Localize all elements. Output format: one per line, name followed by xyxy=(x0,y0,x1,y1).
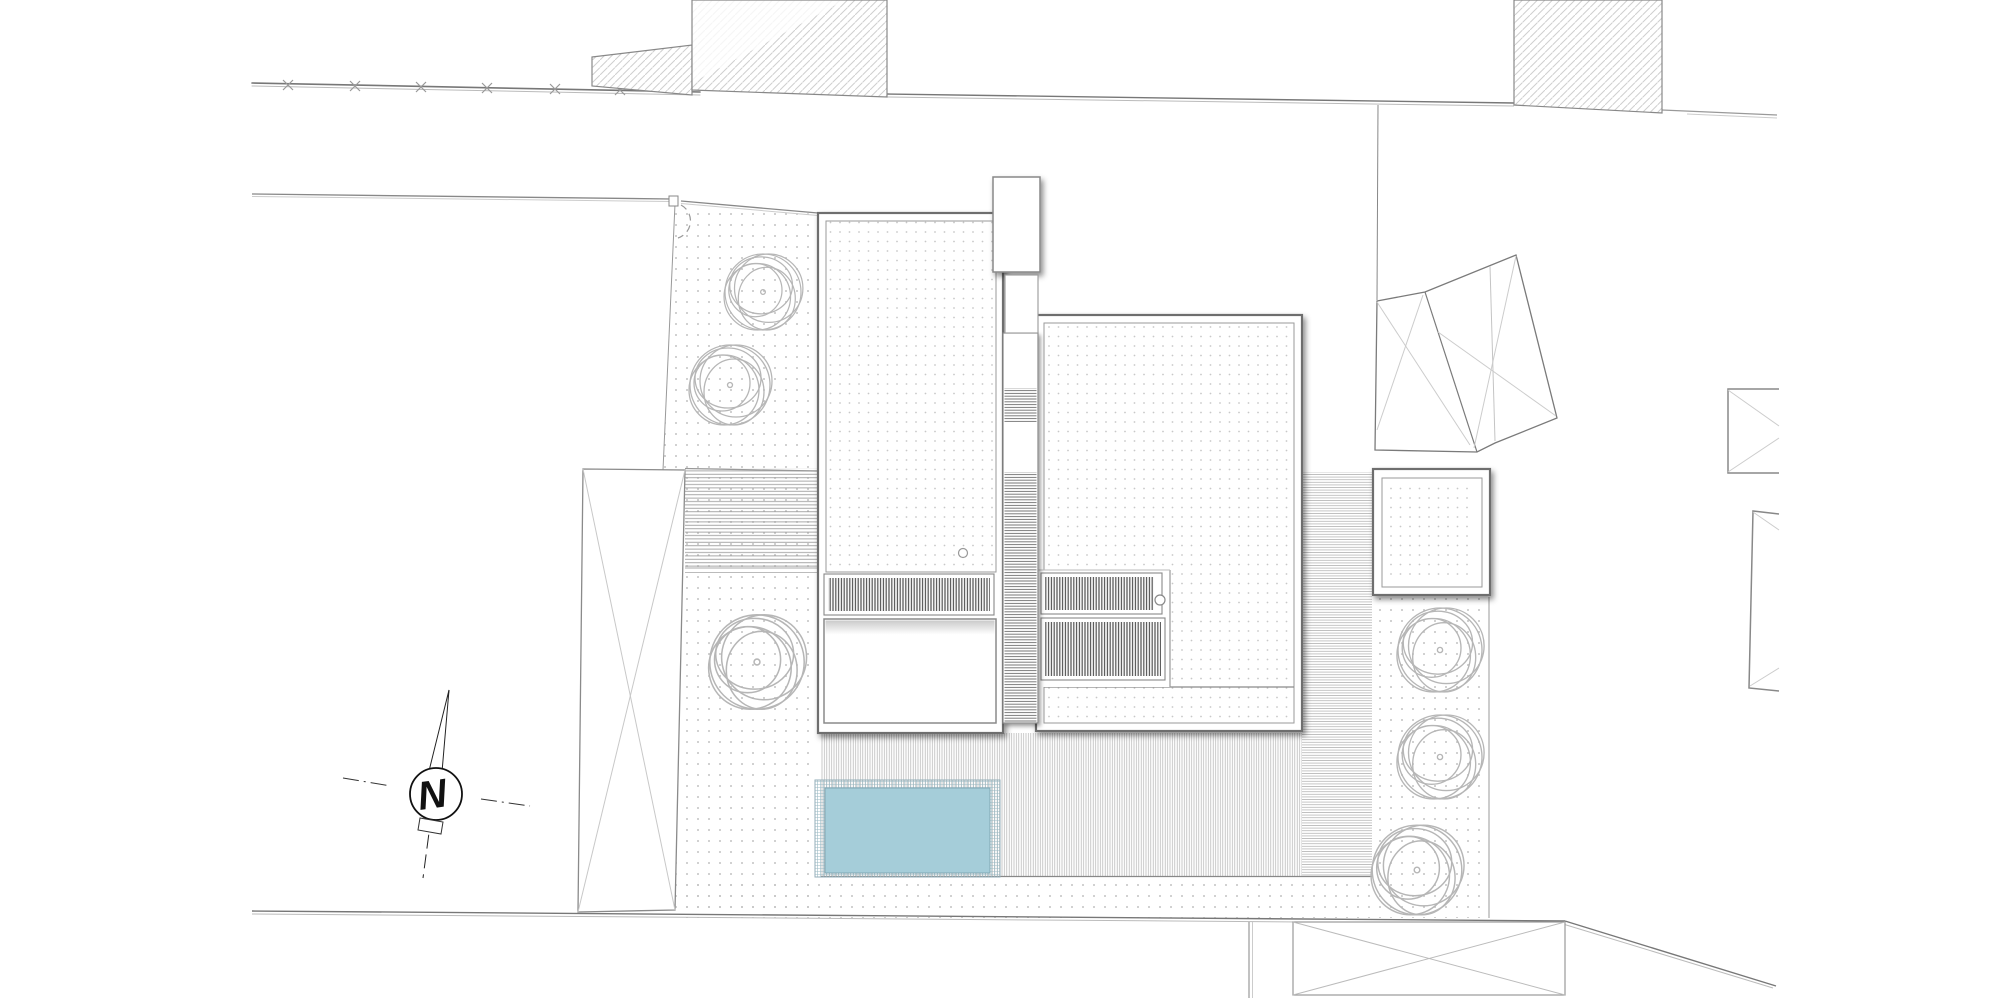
garden-ground-bottom xyxy=(685,876,1489,918)
pergola-louvers-right-upper xyxy=(1041,573,1165,614)
outbuilding-clipped-small xyxy=(1728,389,1779,473)
north-compass: N xyxy=(343,690,530,878)
bottom-building-x-rect xyxy=(1293,922,1565,995)
plot-boundary-right-vertical xyxy=(1377,105,1378,300)
roof-drain-detail xyxy=(959,549,968,558)
neighbor-building-top-small xyxy=(592,45,692,95)
site-plan-canvas: N xyxy=(0,0,2000,1000)
pool-water xyxy=(825,788,990,873)
site-plan-drawing: N xyxy=(0,0,2000,1000)
courtyard-patio xyxy=(824,619,996,723)
stairs-lower-flight xyxy=(1005,472,1037,722)
neighbor-building-top-large xyxy=(692,0,887,97)
terrace-band xyxy=(685,468,817,573)
pool xyxy=(815,780,1000,877)
pergola-detail-circle xyxy=(1155,595,1165,605)
pergola-louvers-right-lower xyxy=(1041,618,1165,680)
house-left-roof xyxy=(826,221,996,572)
stairs-upper-flight xyxy=(1005,388,1037,422)
pergola-louvers-left xyxy=(824,574,994,615)
entry-canopy xyxy=(993,177,1040,272)
gate-post xyxy=(669,196,678,206)
garden-structure-roof xyxy=(1382,478,1482,587)
neighbor-roof-facets xyxy=(1375,255,1557,452)
neighbor-building-top-right xyxy=(1514,0,1662,113)
outbuilding-clipped-large xyxy=(1749,511,1779,691)
driveway-x-rect xyxy=(578,469,685,912)
boardwalk-steps xyxy=(1302,472,1372,876)
compass-needle xyxy=(429,690,449,772)
entry-landing xyxy=(1005,275,1038,333)
